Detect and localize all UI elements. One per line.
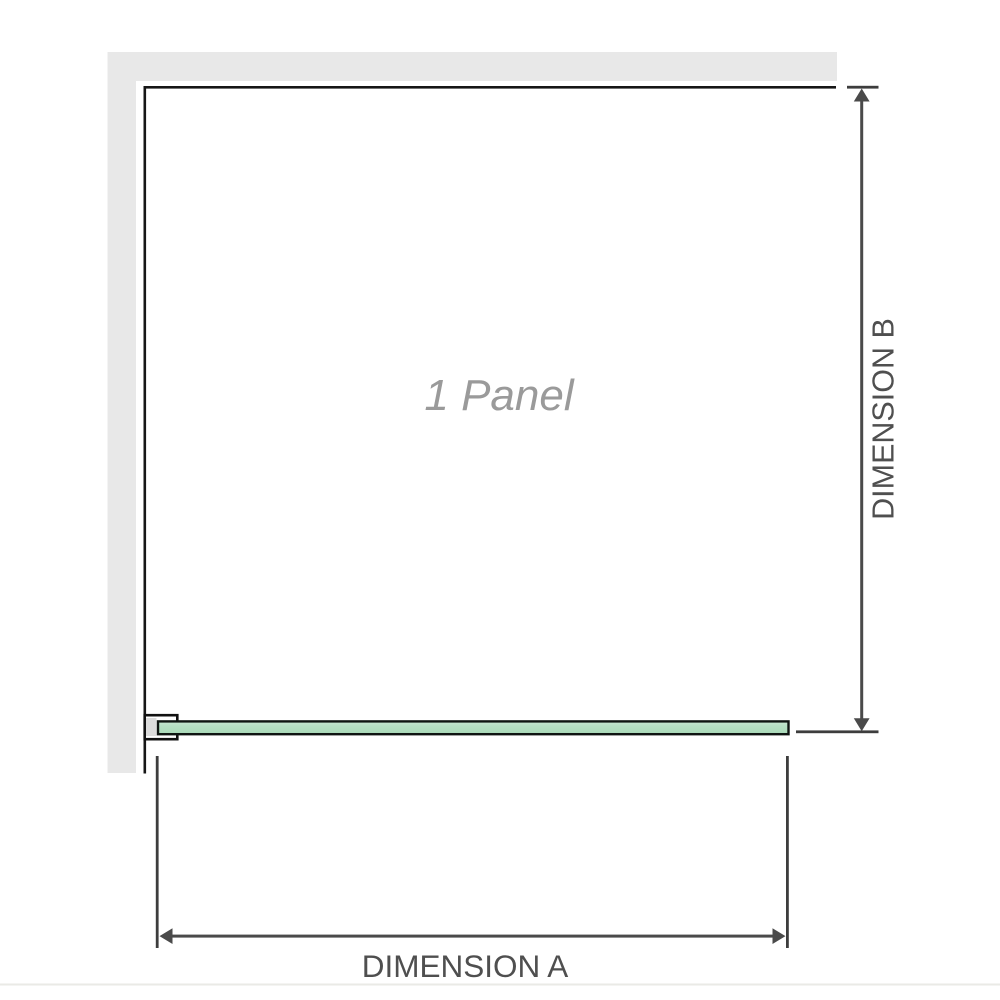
svg-text:DIMENSION A: DIMENSION A	[362, 948, 569, 984]
svg-text:DIMENSION B: DIMENSION B	[867, 318, 901, 520]
svg-text:1 Panel: 1 Panel	[424, 371, 574, 420]
